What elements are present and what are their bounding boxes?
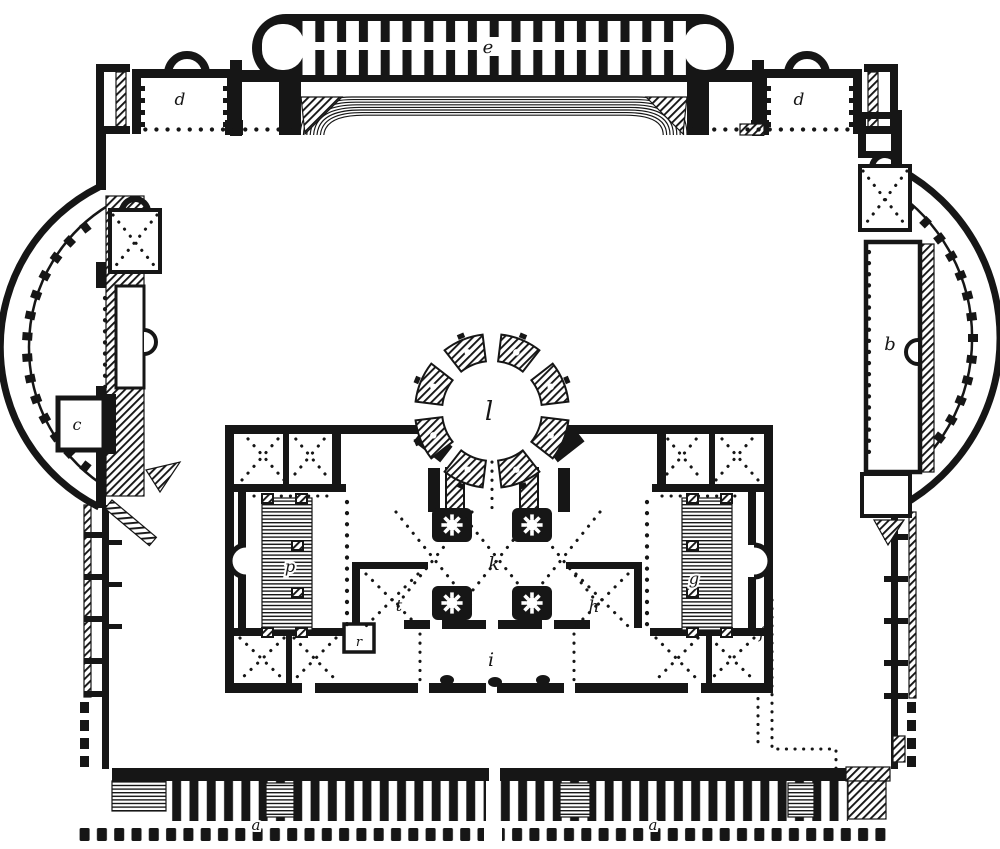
niche-arc: [906, 340, 918, 364]
plan-geometry: [302, 683, 315, 693]
exedra-pier: [30, 394, 42, 405]
label-a-left: a: [252, 816, 261, 834]
plan-geometry: [758, 69, 862, 78]
plan-geometry: [262, 628, 273, 637]
plan-geometry: [109, 624, 122, 629]
label-c: c: [73, 415, 82, 434]
column-dot: [464, 466, 470, 472]
plan-geometry: [907, 756, 916, 767]
column-dot: [547, 432, 553, 438]
exedra-pier: [968, 334, 978, 342]
plan-geometry: [884, 693, 908, 699]
pier-star-spike: [537, 523, 542, 527]
plan-geometry: [352, 562, 428, 569]
plan-geometry: [560, 783, 590, 817]
label-e: e: [483, 37, 494, 58]
plan-geometry: [84, 574, 108, 580]
plan-geometry: [748, 492, 756, 545]
exedra-pier: [22, 353, 33, 362]
plan-geometry: [907, 720, 916, 731]
plan-geometry: [116, 72, 126, 128]
plan-geometry: [564, 683, 575, 693]
plan-geometry: [418, 683, 429, 693]
floor-plan-svg: e d d b c l k t h i p g r f a a: [0, 0, 1000, 849]
plan-geometry: [687, 588, 698, 597]
plan-geometry: [141, 110, 145, 115]
column-base: [488, 677, 502, 687]
exedra-pier: [38, 270, 51, 282]
exedra-pier: [63, 235, 76, 248]
label-i: i: [488, 649, 494, 671]
plan-geometry: [112, 768, 489, 781]
plan-geometry: [767, 98, 771, 103]
plan-geometry: [141, 122, 145, 127]
plan-geometry: [96, 70, 104, 132]
exedra-pier: [919, 216, 932, 229]
pier-star-spike: [457, 523, 462, 527]
column-dot: [430, 383, 436, 389]
pier-star-spike: [450, 592, 454, 597]
seating-line: [317, 110, 670, 135]
palaestra-floor: [682, 498, 732, 630]
plan-geometry: [858, 112, 902, 119]
plan-geometry: [566, 562, 642, 569]
plan-geometry: [292, 588, 303, 597]
pier-star-spike: [530, 592, 534, 597]
pier-star-spike: [450, 514, 454, 519]
plan-geometry: [709, 428, 715, 486]
label-g: g: [689, 569, 699, 588]
label-p: p: [285, 557, 295, 576]
pier-star-spike: [457, 601, 462, 605]
pier-star-spike: [441, 601, 446, 605]
plan-geometry: [146, 462, 180, 492]
plan-geometry: [84, 616, 108, 622]
seating-corner-block: [687, 80, 709, 135]
plan-geometry: [721, 628, 732, 637]
label-r: r: [356, 635, 363, 650]
seating-line: [310, 105, 677, 135]
label-l: l: [485, 397, 493, 427]
exedra-pier: [955, 395, 967, 406]
plan-geometry: [634, 562, 642, 628]
right-exedra: [860, 155, 1000, 545]
seating-line: [324, 115, 663, 135]
pier-star-spike: [537, 601, 542, 605]
plan-geometry: [266, 783, 294, 817]
column-base: [536, 675, 550, 685]
pier-star-spike: [521, 601, 526, 605]
column-dot: [430, 432, 436, 438]
pier-star-spike: [450, 608, 454, 613]
plan-geometry: [884, 576, 908, 582]
plan-geometry: [238, 577, 246, 632]
plan-geometry: [80, 702, 89, 713]
exedra-pier: [79, 460, 91, 473]
plan-geometry: [110, 210, 160, 272]
hall-d-left: [96, 55, 243, 135]
exedra-outer-wall: [0, 187, 99, 507]
pier-star-spike: [521, 523, 526, 527]
plan-geometry: [283, 428, 289, 486]
exedra-pier: [962, 291, 974, 301]
plan-geometry: [238, 492, 246, 545]
label-k: k: [488, 553, 500, 575]
plan-geometry: [223, 86, 227, 91]
plan-geometry: [706, 632, 712, 686]
exedra-pier: [38, 412, 51, 424]
exedra-pier: [945, 414, 958, 426]
plan-geometry: [849, 98, 853, 103]
plan-geometry: [748, 577, 756, 632]
plan-geometry: [116, 286, 144, 388]
plan-geometry: [767, 78, 853, 132]
plan-geometry: [96, 448, 106, 508]
plan-geometry: [84, 691, 108, 697]
plan-geometry: [846, 767, 890, 781]
plan-geometry: [141, 86, 145, 91]
plan-geometry: [223, 110, 227, 115]
plan-geometry: [884, 660, 908, 666]
exedra-pier: [22, 332, 33, 341]
plan-geometry: [500, 768, 888, 781]
tabernae-row: [76, 767, 890, 843]
seating-corner-block: [279, 80, 301, 135]
plan-geometry: [428, 468, 440, 512]
plan-geometry: [688, 683, 701, 693]
plan-geometry: [907, 738, 916, 749]
left-exedra: [0, 187, 180, 546]
plan-geometry: [484, 826, 502, 843]
pier-star-spike: [530, 530, 534, 535]
plan-geometry: [767, 86, 771, 91]
column-dot: [513, 466, 519, 472]
exedra-pier: [30, 290, 42, 301]
plan-geometry: [109, 540, 122, 545]
plan-geometry: [332, 425, 341, 487]
label-t: t: [396, 596, 403, 615]
plan-geometry: [296, 628, 307, 637]
plan-geometry: [767, 110, 771, 115]
plan-geometry: [168, 781, 486, 821]
plan-geometry: [708, 70, 756, 82]
plan-geometry: [657, 425, 666, 487]
plan-geometry: [486, 620, 498, 629]
plan-geometry: [558, 468, 570, 512]
plan-geometry: [109, 582, 122, 587]
label-d-right: d: [794, 90, 805, 110]
plan-geometry: [849, 122, 853, 127]
plan-geometry: [132, 69, 141, 134]
column-base: [440, 675, 454, 685]
plan-geometry: [296, 494, 307, 503]
plan-geometry: [96, 132, 106, 190]
plan-geometry: [105, 500, 157, 546]
plan-geometry: [849, 110, 853, 115]
pier-star-spike: [450, 530, 454, 535]
plan-geometry: [849, 86, 853, 91]
plan-geometry: [542, 620, 554, 629]
niche-arc: [144, 330, 156, 354]
exedra-pier: [25, 310, 36, 320]
exedra-pier: [962, 375, 974, 385]
apse-arc: [230, 545, 246, 577]
exedra-pier: [966, 312, 977, 321]
plan-geometry: [141, 98, 145, 103]
exedra-pier: [945, 250, 958, 262]
plan-geometry: [84, 532, 108, 538]
column-dot: [513, 349, 519, 355]
plan-geometry: [868, 72, 878, 128]
plan-geometry: [891, 512, 898, 769]
exedra-pier: [25, 374, 36, 384]
plan-geometry: [884, 618, 908, 624]
exedra-pier: [966, 355, 977, 364]
plan-geometry: [262, 494, 273, 503]
plan-geometry: [80, 738, 89, 749]
plan-geometry: [132, 69, 236, 78]
plan-geometry: [874, 520, 904, 545]
plan-geometry: [788, 783, 814, 817]
pier-star-spike: [441, 523, 446, 527]
pier-star-spike: [530, 514, 534, 519]
plan-geometry: [80, 756, 89, 767]
pier-row: [76, 826, 888, 843]
plan-geometry: [430, 620, 442, 629]
plan-geometry: [893, 736, 905, 762]
plan-geometry: [102, 505, 109, 769]
plan-geometry: [687, 494, 698, 503]
plan-geometry: [687, 628, 698, 637]
seating-corner-hatch: [646, 97, 687, 134]
plan-geometry: [286, 632, 292, 686]
floor-plan-figure: e d d b c l k t h i p g r f a a: [0, 0, 1000, 849]
plan-geometry: [223, 98, 227, 103]
pier-star-spike: [530, 608, 534, 613]
column-dot: [547, 383, 553, 389]
seating-line: [320, 113, 666, 135]
plan-geometry: [848, 781, 886, 819]
label-d-left: d: [175, 90, 186, 110]
label-b: b: [884, 334, 896, 355]
plan-geometry: [772, 600, 836, 769]
exedra-pier: [79, 221, 91, 234]
column-dot: [464, 349, 470, 355]
plan-geometry: [907, 702, 916, 713]
plan-geometry: [352, 562, 360, 628]
plan-geometry: [112, 781, 166, 811]
plan-geometry: [862, 474, 910, 516]
apse-arc: [754, 545, 770, 577]
exedra-pier: [955, 270, 967, 281]
seating-line: [314, 107, 674, 135]
label-h: h: [589, 597, 600, 617]
plan-geometry: [687, 541, 698, 550]
plan-geometry: [84, 658, 108, 664]
plan-geometry: [563, 425, 773, 434]
plan-geometry: [96, 262, 106, 288]
plan-geometry: [721, 494, 732, 503]
plan-geometry: [80, 720, 89, 731]
plan-geometry: [232, 70, 280, 82]
label-a-right: a: [649, 816, 658, 834]
plan-geometry: [909, 512, 916, 698]
plan-geometry: [292, 541, 303, 550]
